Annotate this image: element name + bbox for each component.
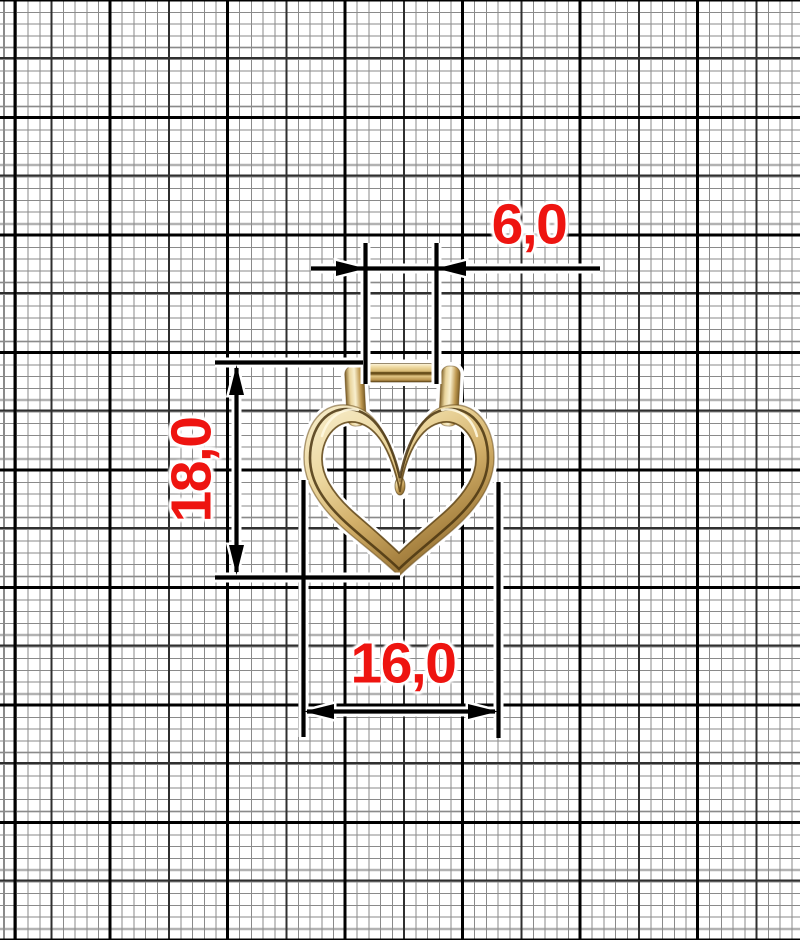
dim-label-height: 18,0 [164, 418, 221, 523]
graph-paper-canvas: 6,0 18,0 16,0 [0, 0, 800, 940]
technical-drawing [0, 0, 800, 940]
dim-label-width: 16,0 [351, 636, 456, 693]
dim-label-bail-width: 6,0 [492, 197, 567, 254]
pendant [304, 364, 494, 577]
bail-bar [370, 364, 433, 383]
